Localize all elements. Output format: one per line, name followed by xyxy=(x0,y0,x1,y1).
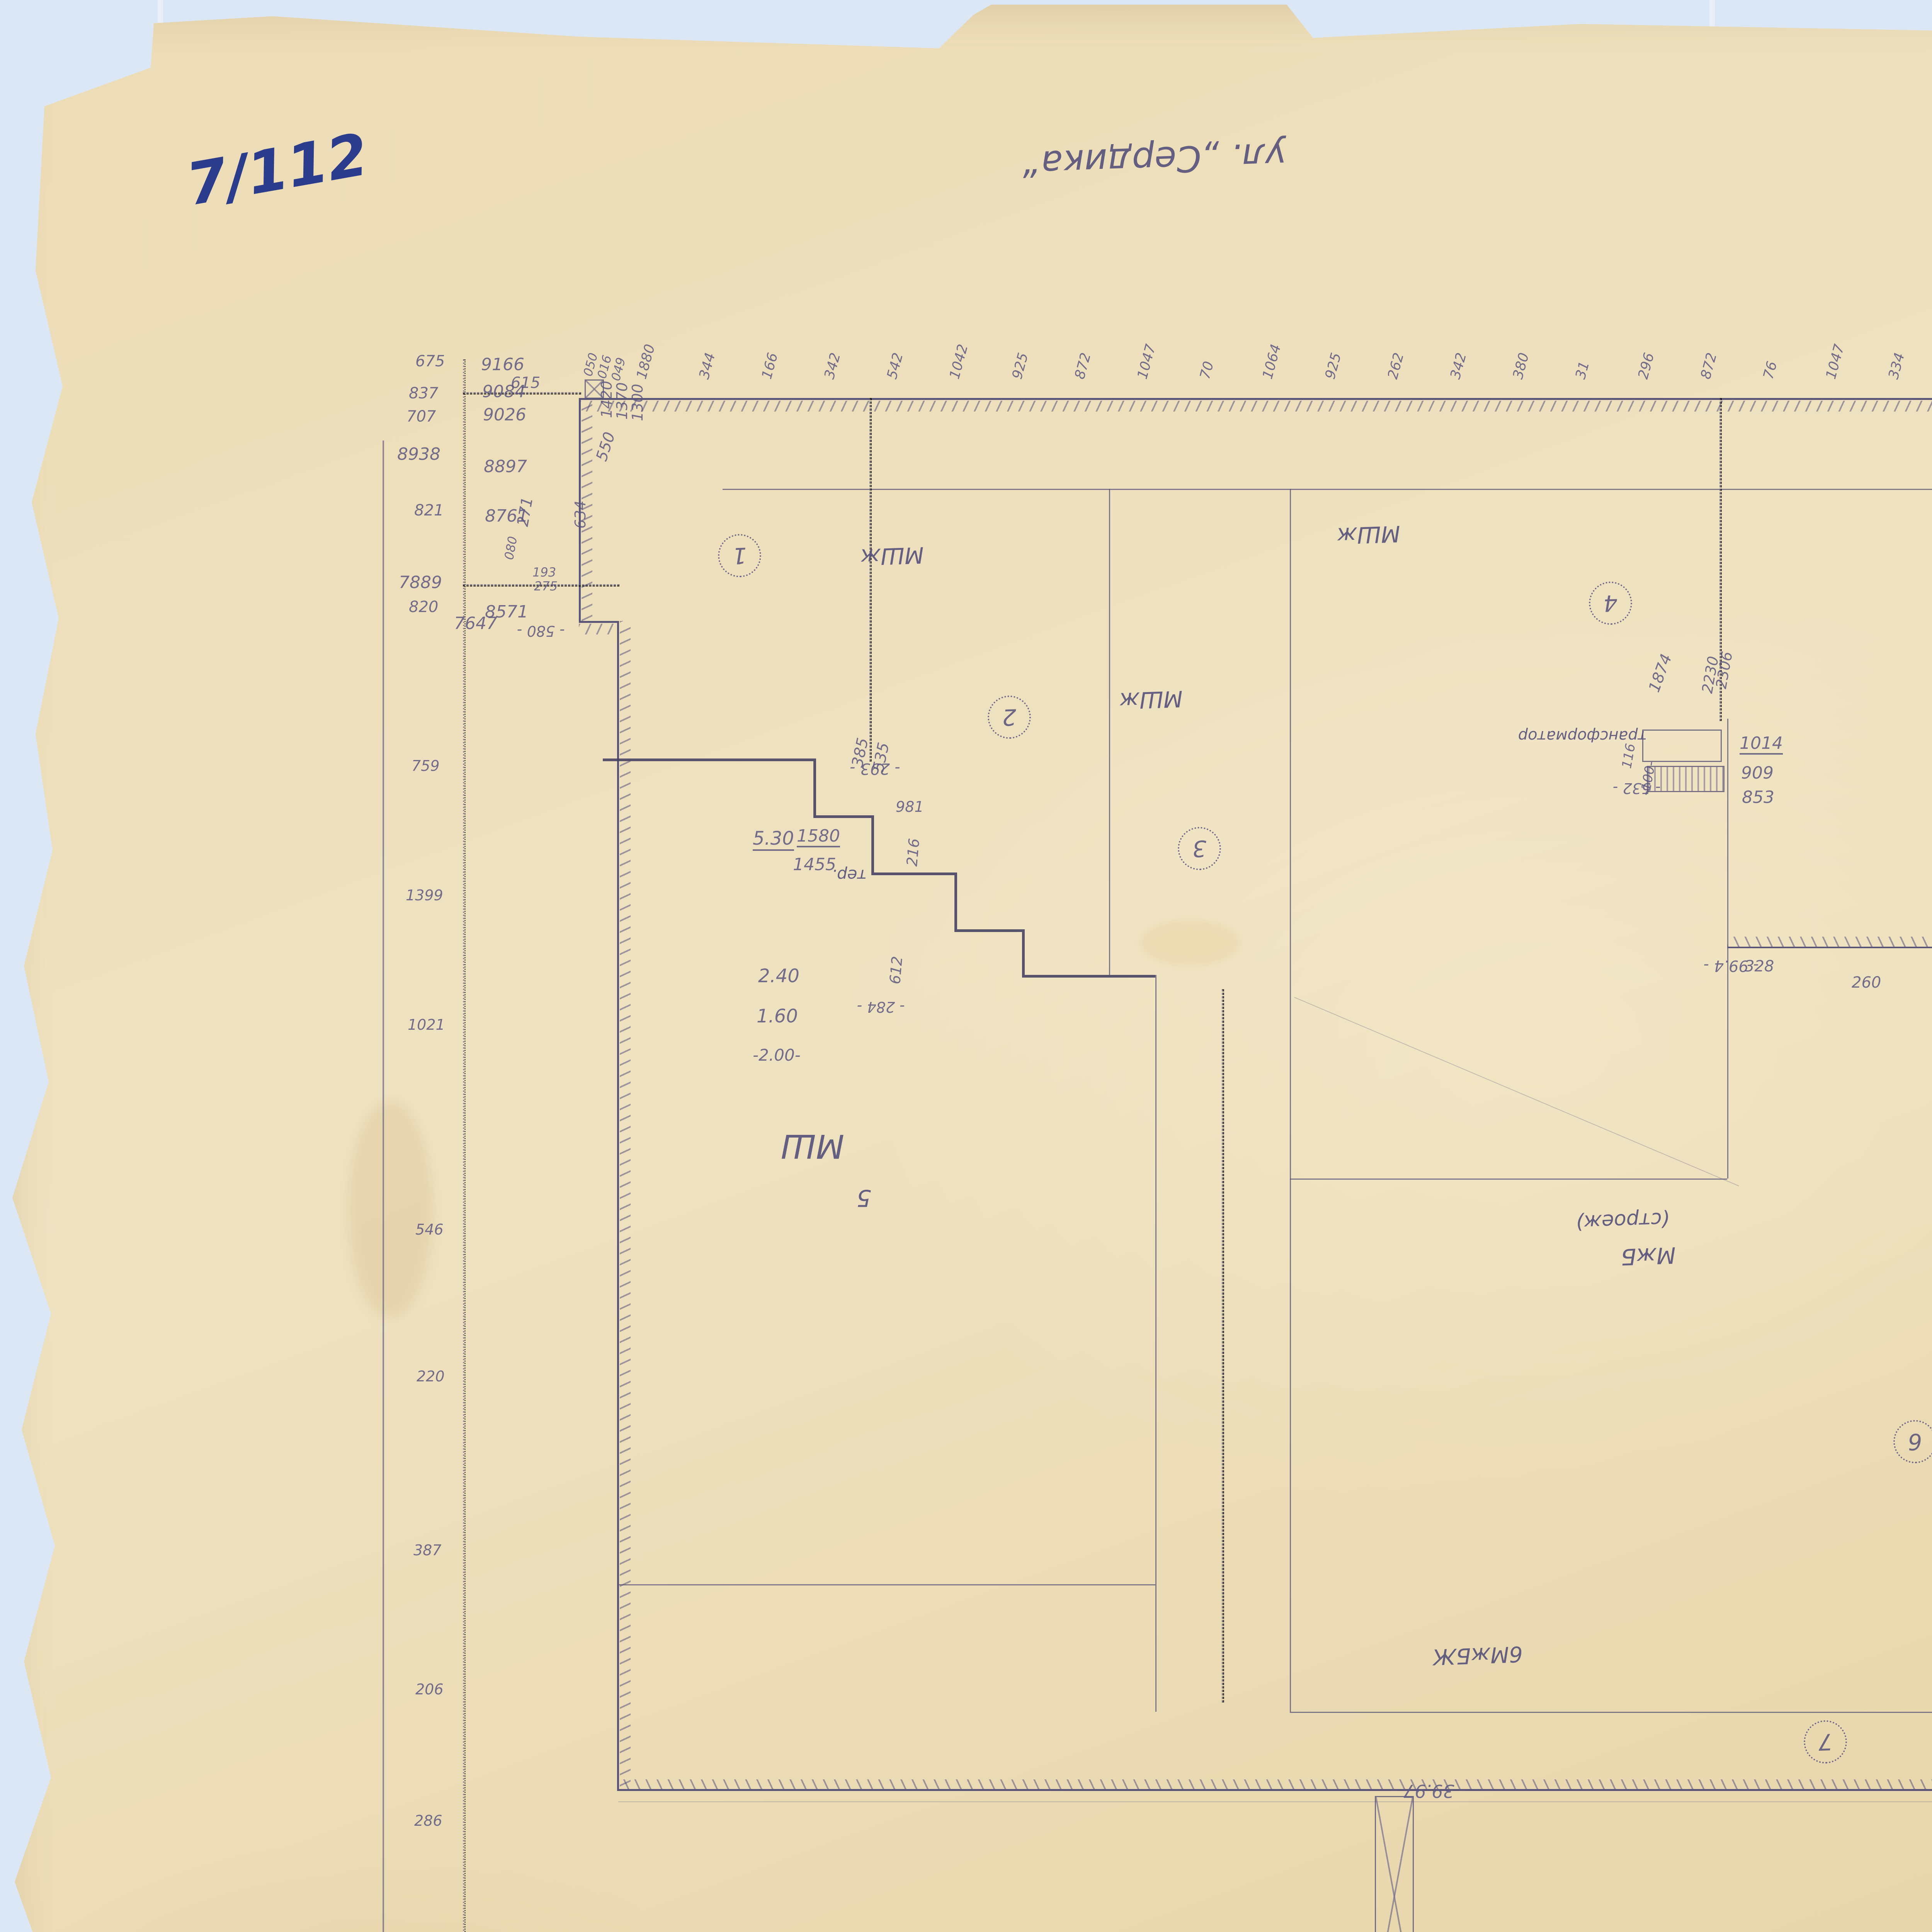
building-label: МШж xyxy=(1119,685,1183,714)
dimension-label: 634 xyxy=(572,500,589,529)
dimension-label: 1580 xyxy=(797,826,840,847)
dimension-label: - 39.97 - xyxy=(1391,1781,1466,1801)
dimension-label: 759 xyxy=(412,757,440,774)
dimension-label: 615 xyxy=(511,374,540,392)
dimension-label: - 284 - xyxy=(857,998,905,1015)
building-edge xyxy=(1290,1179,1727,1180)
transformer-outline xyxy=(1642,730,1722,762)
dimension-label: 387 xyxy=(413,1542,442,1559)
plot-divider xyxy=(1109,489,1110,975)
building-edge xyxy=(617,1584,1155,1585)
building-step-outline xyxy=(954,872,957,929)
building-label: трансформатор xyxy=(1518,727,1647,745)
dimension-label: 612 xyxy=(886,956,906,985)
dimension-label: 9026 xyxy=(483,405,526,425)
dimension-label: 981 xyxy=(896,798,924,815)
dimension-label: - 580 - xyxy=(517,622,565,639)
building-label: 6МжБЖ xyxy=(1432,1641,1523,1669)
building-step-outline xyxy=(813,759,816,815)
building-label: 5 xyxy=(857,1184,871,1211)
building-edge xyxy=(1290,1712,1932,1713)
plot-divider xyxy=(1290,489,1291,1712)
building-edge xyxy=(1155,975,1156,1712)
building-step-outline xyxy=(871,872,954,875)
building-label: МШж xyxy=(860,542,924,570)
dimension-label: 909 xyxy=(1741,763,1774,783)
building-label: тер. xyxy=(832,866,867,885)
dimension-label: -2.00- xyxy=(753,1046,801,1065)
dimension-label: 260 xyxy=(1852,974,1881,992)
dimension-label: 707 xyxy=(406,408,436,425)
dimension-label: 206 xyxy=(415,1681,444,1698)
dimension-label: 7889 xyxy=(399,573,442,592)
dimension-label: 7647 xyxy=(454,614,497,633)
building-edge-hatched xyxy=(1727,947,1932,948)
dimension-label: 193 xyxy=(532,565,556,580)
dimension-label: 286 xyxy=(414,1812,442,1829)
scanned-cadastral-plan: { "colors": { "scanner_background": "#dc… xyxy=(0,0,1932,1932)
building-label: МШж xyxy=(1336,520,1401,549)
dimension-label: 675 xyxy=(415,352,445,370)
building-step-outline xyxy=(813,815,871,818)
stairs-shaft xyxy=(1375,1796,1414,1932)
dimension-label: 1370 xyxy=(614,382,631,420)
block-boundary-top xyxy=(580,398,1932,400)
dimension-label: 1420 xyxy=(598,381,615,418)
dimension-label: - 532 - xyxy=(1613,780,1661,797)
dimension-label: 1399 xyxy=(406,887,443,904)
street-outer-frame xyxy=(383,440,1932,1932)
building-step-outline xyxy=(603,759,813,761)
sidewalk-line xyxy=(618,1801,1932,1802)
dimension-label: 820 xyxy=(409,598,438,616)
building-step-outline xyxy=(1022,929,1025,975)
dimension-label: 2.40 xyxy=(758,965,799,987)
regulation-line xyxy=(463,359,466,1932)
building-step-outline xyxy=(1022,975,1155,978)
dimension-label: 546 xyxy=(415,1221,444,1238)
building-label: (строеж) xyxy=(1575,1207,1670,1234)
dimension-label: 837 xyxy=(409,384,438,402)
dimension-label: 5.30 xyxy=(753,828,794,851)
dimension-label: 1455 xyxy=(793,855,836,874)
building-centerline xyxy=(1222,989,1224,1702)
dimension-label: - 99.4 - xyxy=(1704,957,1759,975)
dimension-label: 8938 xyxy=(397,444,440,464)
building-label: МШ xyxy=(781,1127,844,1165)
dimension-label: 275 xyxy=(534,579,558,594)
building-edge xyxy=(1727,719,1728,1179)
facade-line xyxy=(723,489,1932,490)
dimension-label: 8897 xyxy=(484,457,527,476)
dimension-label: 1.60 xyxy=(757,1005,798,1027)
building-label: МжБ xyxy=(1621,1242,1676,1270)
block-boundary-bottom xyxy=(617,1789,1932,1791)
dimension-label: 9166 xyxy=(481,355,524,374)
dimension-label: 220 xyxy=(417,1368,445,1385)
building-step-outline xyxy=(954,929,1022,932)
dimension-label: 1300 xyxy=(629,384,646,421)
block-boundary-step xyxy=(579,621,617,623)
dimension-label: 1014 xyxy=(1740,733,1783,755)
dimension-label: 853 xyxy=(1742,787,1774,807)
block-boundary-left-lower xyxy=(617,621,619,1789)
plot-divider xyxy=(869,398,872,762)
dimension-label: 1021 xyxy=(408,1016,445,1033)
dimension-label: 821 xyxy=(414,502,444,519)
dimension-label: 216 xyxy=(903,838,923,867)
building-step-outline xyxy=(871,815,874,872)
